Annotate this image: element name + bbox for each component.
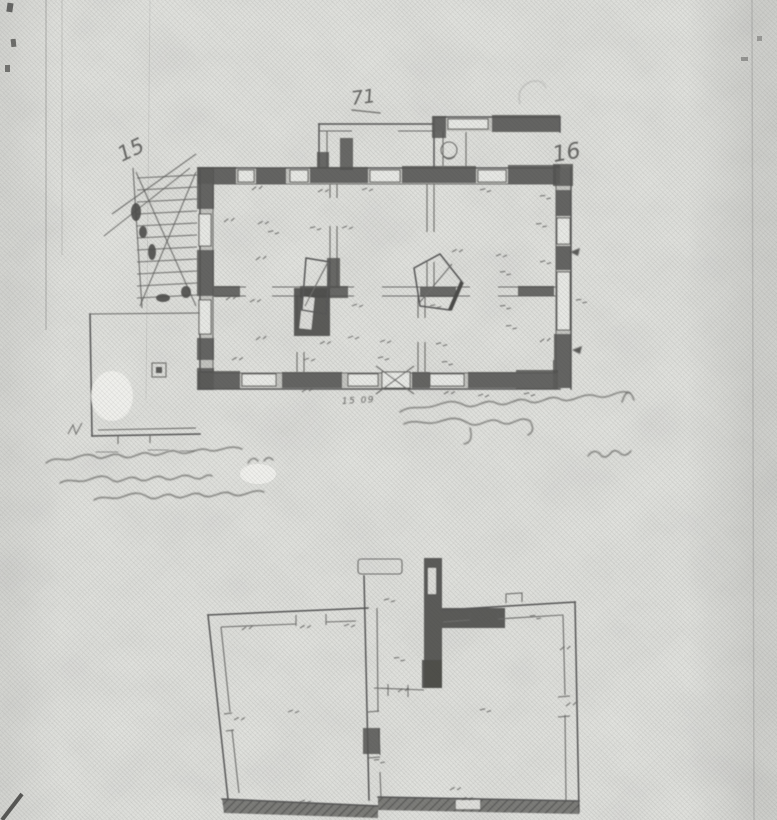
floorplan-drawing: 15 71 16 15 09	[0, 0, 777, 820]
scanned-floorplan-page: 15 71 16 15 09	[0, 0, 777, 820]
door-dimension-label: 15 09	[342, 395, 376, 407]
handwritten-mark-16: 16	[551, 138, 583, 167]
handwritten-mark-71: 71	[350, 85, 377, 110]
